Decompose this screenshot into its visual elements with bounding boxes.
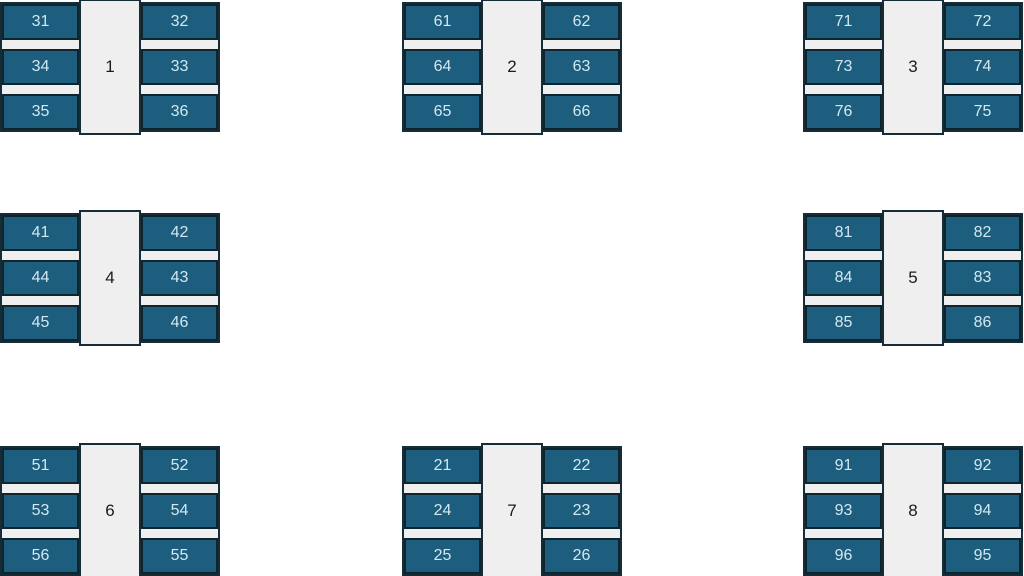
seat[interactable]: 81 — [805, 215, 882, 251]
table-desk[interactable]: 3 — [882, 0, 944, 135]
table-desk[interactable]: 5 — [882, 210, 944, 346]
seat[interactable]: 91 — [805, 448, 882, 484]
seat[interactable]: 66 — [543, 94, 620, 130]
seat[interactable]: 61 — [404, 4, 481, 40]
seating-plan-canvas: 31 32 34 33 35 36 1 61 62 64 63 65 66 2 … — [0, 0, 1024, 576]
seat[interactable]: 36 — [141, 94, 218, 130]
seat[interactable]: 64 — [404, 49, 481, 85]
seat[interactable]: 95 — [944, 538, 1021, 574]
seat[interactable]: 65 — [404, 94, 481, 130]
seat[interactable]: 86 — [944, 305, 1021, 341]
table-desk[interactable]: 4 — [79, 210, 141, 346]
seat[interactable]: 94 — [944, 493, 1021, 529]
seat[interactable]: 54 — [141, 493, 218, 529]
seat[interactable]: 56 — [2, 538, 79, 574]
table-desk[interactable]: 6 — [79, 443, 141, 576]
seat[interactable]: 75 — [944, 94, 1021, 130]
table-desk[interactable]: 7 — [481, 443, 543, 576]
seat[interactable]: 43 — [141, 260, 218, 296]
seat[interactable]: 23 — [543, 493, 620, 529]
seat[interactable]: 93 — [805, 493, 882, 529]
seat[interactable]: 76 — [805, 94, 882, 130]
table-group-8: 91 92 93 94 96 95 8 — [803, 446, 1023, 576]
seat[interactable]: 41 — [2, 215, 79, 251]
seat[interactable]: 21 — [404, 448, 481, 484]
table-group-1: 31 32 34 33 35 36 1 — [0, 2, 220, 132]
table-group-6: 51 52 53 54 56 55 6 — [0, 446, 220, 576]
seat[interactable]: 33 — [141, 49, 218, 85]
table-group-7: 21 22 24 23 25 26 7 — [402, 446, 622, 576]
seat[interactable]: 45 — [2, 305, 79, 341]
seat[interactable]: 32 — [141, 4, 218, 40]
seat[interactable]: 51 — [2, 448, 79, 484]
seat[interactable]: 46 — [141, 305, 218, 341]
seat[interactable]: 34 — [2, 49, 79, 85]
seat[interactable]: 24 — [404, 493, 481, 529]
seat[interactable]: 22 — [543, 448, 620, 484]
seat[interactable]: 62 — [543, 4, 620, 40]
seat[interactable]: 83 — [944, 260, 1021, 296]
table-group-3: 71 72 73 74 76 75 3 — [803, 2, 1023, 132]
seat[interactable]: 74 — [944, 49, 1021, 85]
seat[interactable]: 92 — [944, 448, 1021, 484]
seat[interactable]: 52 — [141, 448, 218, 484]
seat[interactable]: 84 — [805, 260, 882, 296]
table-group-2: 61 62 64 63 65 66 2 — [402, 2, 622, 132]
seat[interactable]: 31 — [2, 4, 79, 40]
seat[interactable]: 85 — [805, 305, 882, 341]
table-group-4: 41 42 44 43 45 46 4 — [0, 213, 220, 343]
seat[interactable]: 42 — [141, 215, 218, 251]
seat[interactable]: 63 — [543, 49, 620, 85]
seat[interactable]: 73 — [805, 49, 882, 85]
table-group-5: 81 82 84 83 85 86 5 — [803, 213, 1023, 343]
table-desk[interactable]: 1 — [79, 0, 141, 135]
seat[interactable]: 25 — [404, 538, 481, 574]
seat[interactable]: 53 — [2, 493, 79, 529]
seat[interactable]: 44 — [2, 260, 79, 296]
seat[interactable]: 72 — [944, 4, 1021, 40]
seat[interactable]: 71 — [805, 4, 882, 40]
table-desk[interactable]: 2 — [481, 0, 543, 135]
seat[interactable]: 96 — [805, 538, 882, 574]
seat[interactable]: 82 — [944, 215, 1021, 251]
seat[interactable]: 35 — [2, 94, 79, 130]
table-desk[interactable]: 8 — [882, 443, 944, 576]
seat[interactable]: 55 — [141, 538, 218, 574]
seat[interactable]: 26 — [543, 538, 620, 574]
